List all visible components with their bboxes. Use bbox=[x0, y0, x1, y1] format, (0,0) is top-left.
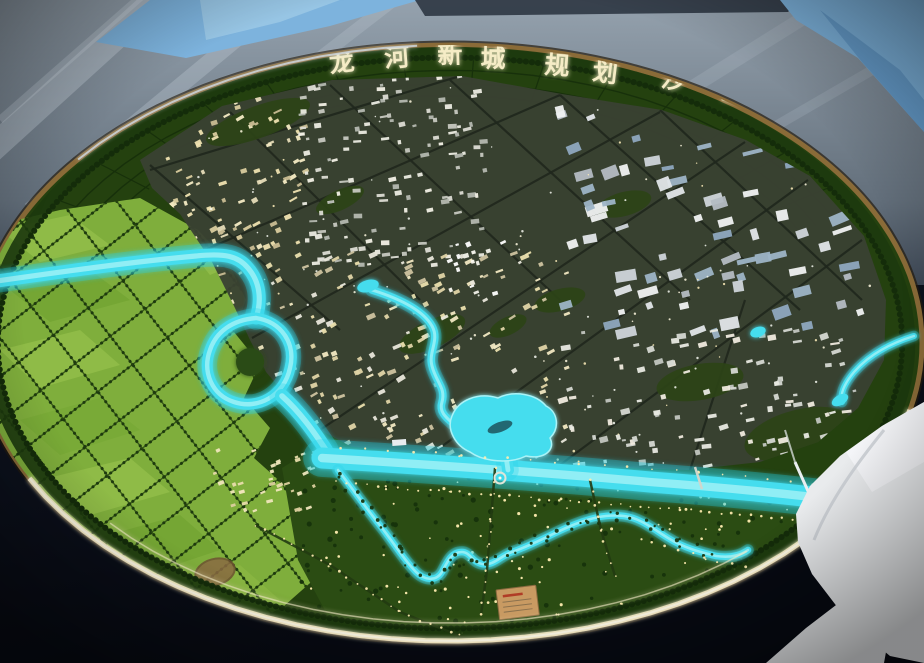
sand-table-model-photo: 龙河新城规划沙盘 bbox=[0, 0, 924, 663]
exhibition-hall-photo: 龙河新城规划沙盘 bbox=[0, 0, 924, 663]
photo-vignette bbox=[0, 0, 924, 663]
